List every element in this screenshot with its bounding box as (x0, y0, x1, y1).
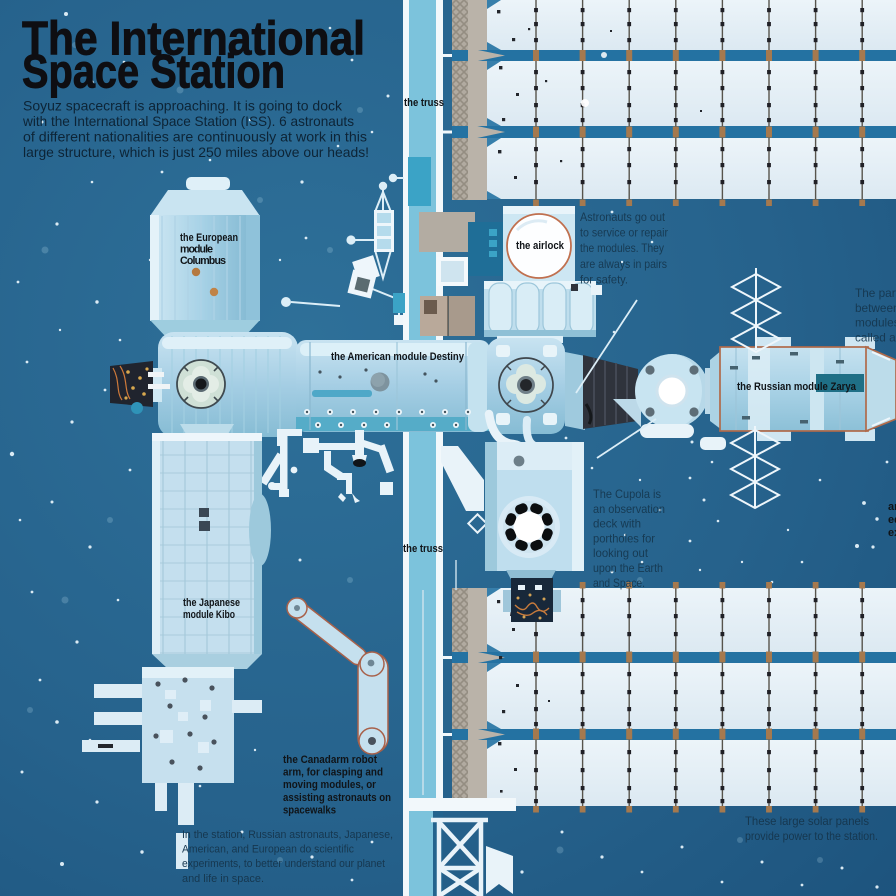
svg-text:Astronauts go out: Astronauts go out (580, 210, 666, 224)
svg-text:and Space.: and Space. (593, 576, 645, 590)
svg-text:with the International Space S: with the International Space Station (IS… (22, 114, 354, 129)
svg-text:the airlock: the airlock (516, 240, 565, 252)
svg-text:exp: exp (888, 527, 896, 539)
svg-text:moving modules, or: moving modules, or (283, 779, 377, 791)
svg-text:between: between (855, 301, 896, 315)
svg-text:the Canadarm robot: the Canadarm robot (283, 754, 377, 766)
svg-text:These large solar panels: These large solar panels (745, 814, 869, 828)
svg-text:the truss: the truss (403, 543, 443, 555)
svg-text:for safety.: for safety. (580, 272, 628, 286)
svg-text:module: module (180, 244, 213, 256)
svg-text:modules: modules (855, 316, 896, 330)
svg-text:provide power to the station.: provide power to the station. (745, 829, 878, 843)
svg-text:deck with: deck with (593, 517, 641, 531)
svg-text:eq: eq (888, 514, 896, 526)
svg-text:looking out: looking out (593, 546, 649, 560)
svg-text:assisting astronauts on: assisting astronauts on (283, 792, 391, 804)
svg-text:are always in pairs: are always in pairs (580, 257, 667, 271)
svg-text:upon the Earth: upon the Earth (593, 561, 663, 575)
svg-text:The Cupola is: The Cupola is (593, 487, 661, 501)
svg-text:the European: the European (180, 232, 238, 244)
svg-text:Columbus: Columbus (180, 255, 226, 267)
svg-text:and life in space.: and life in space. (182, 873, 264, 885)
svg-text:the American module Destiny: the American module Destiny (331, 351, 465, 363)
svg-text:the Japanese: the Japanese (183, 597, 240, 609)
svg-text:to service or repair: to service or repair (580, 226, 668, 240)
svg-text:large structure, which is just: large structure, which is just 250 miles… (23, 145, 369, 160)
svg-text:module Kibo: module Kibo (183, 609, 235, 621)
svg-text:spacewalks: spacewalks (283, 804, 336, 816)
svg-text:arm, for clasping and: arm, for clasping and (283, 767, 383, 779)
svg-text:ano: ano (888, 501, 896, 513)
svg-text:In the station, Russian astron: In the station, Russian astronauts, Japa… (182, 829, 393, 841)
svg-text:portholes for: portholes for (593, 531, 655, 545)
svg-text:the modules. They: the modules. They (580, 241, 664, 255)
svg-text:The part: The part (855, 286, 896, 300)
svg-text:the Russian module Zarya: the Russian module Zarya (737, 381, 857, 393)
svg-text:Soyuz spacecraft is approachin: Soyuz spacecraft is approaching. It is g… (23, 99, 342, 114)
svg-text:Space Station: Space Station (22, 45, 285, 98)
svg-text:American, and European do scie: American, and European do scientific (182, 844, 354, 856)
svg-text:called a n: called a n (855, 330, 896, 344)
svg-text:the truss: the truss (404, 97, 444, 109)
svg-text:experiments, to better underst: experiments, to better understand our pl… (182, 858, 386, 870)
svg-text:of different nationalities are: of different nationalities are continuou… (23, 130, 367, 145)
svg-text:an observation: an observation (593, 502, 665, 516)
